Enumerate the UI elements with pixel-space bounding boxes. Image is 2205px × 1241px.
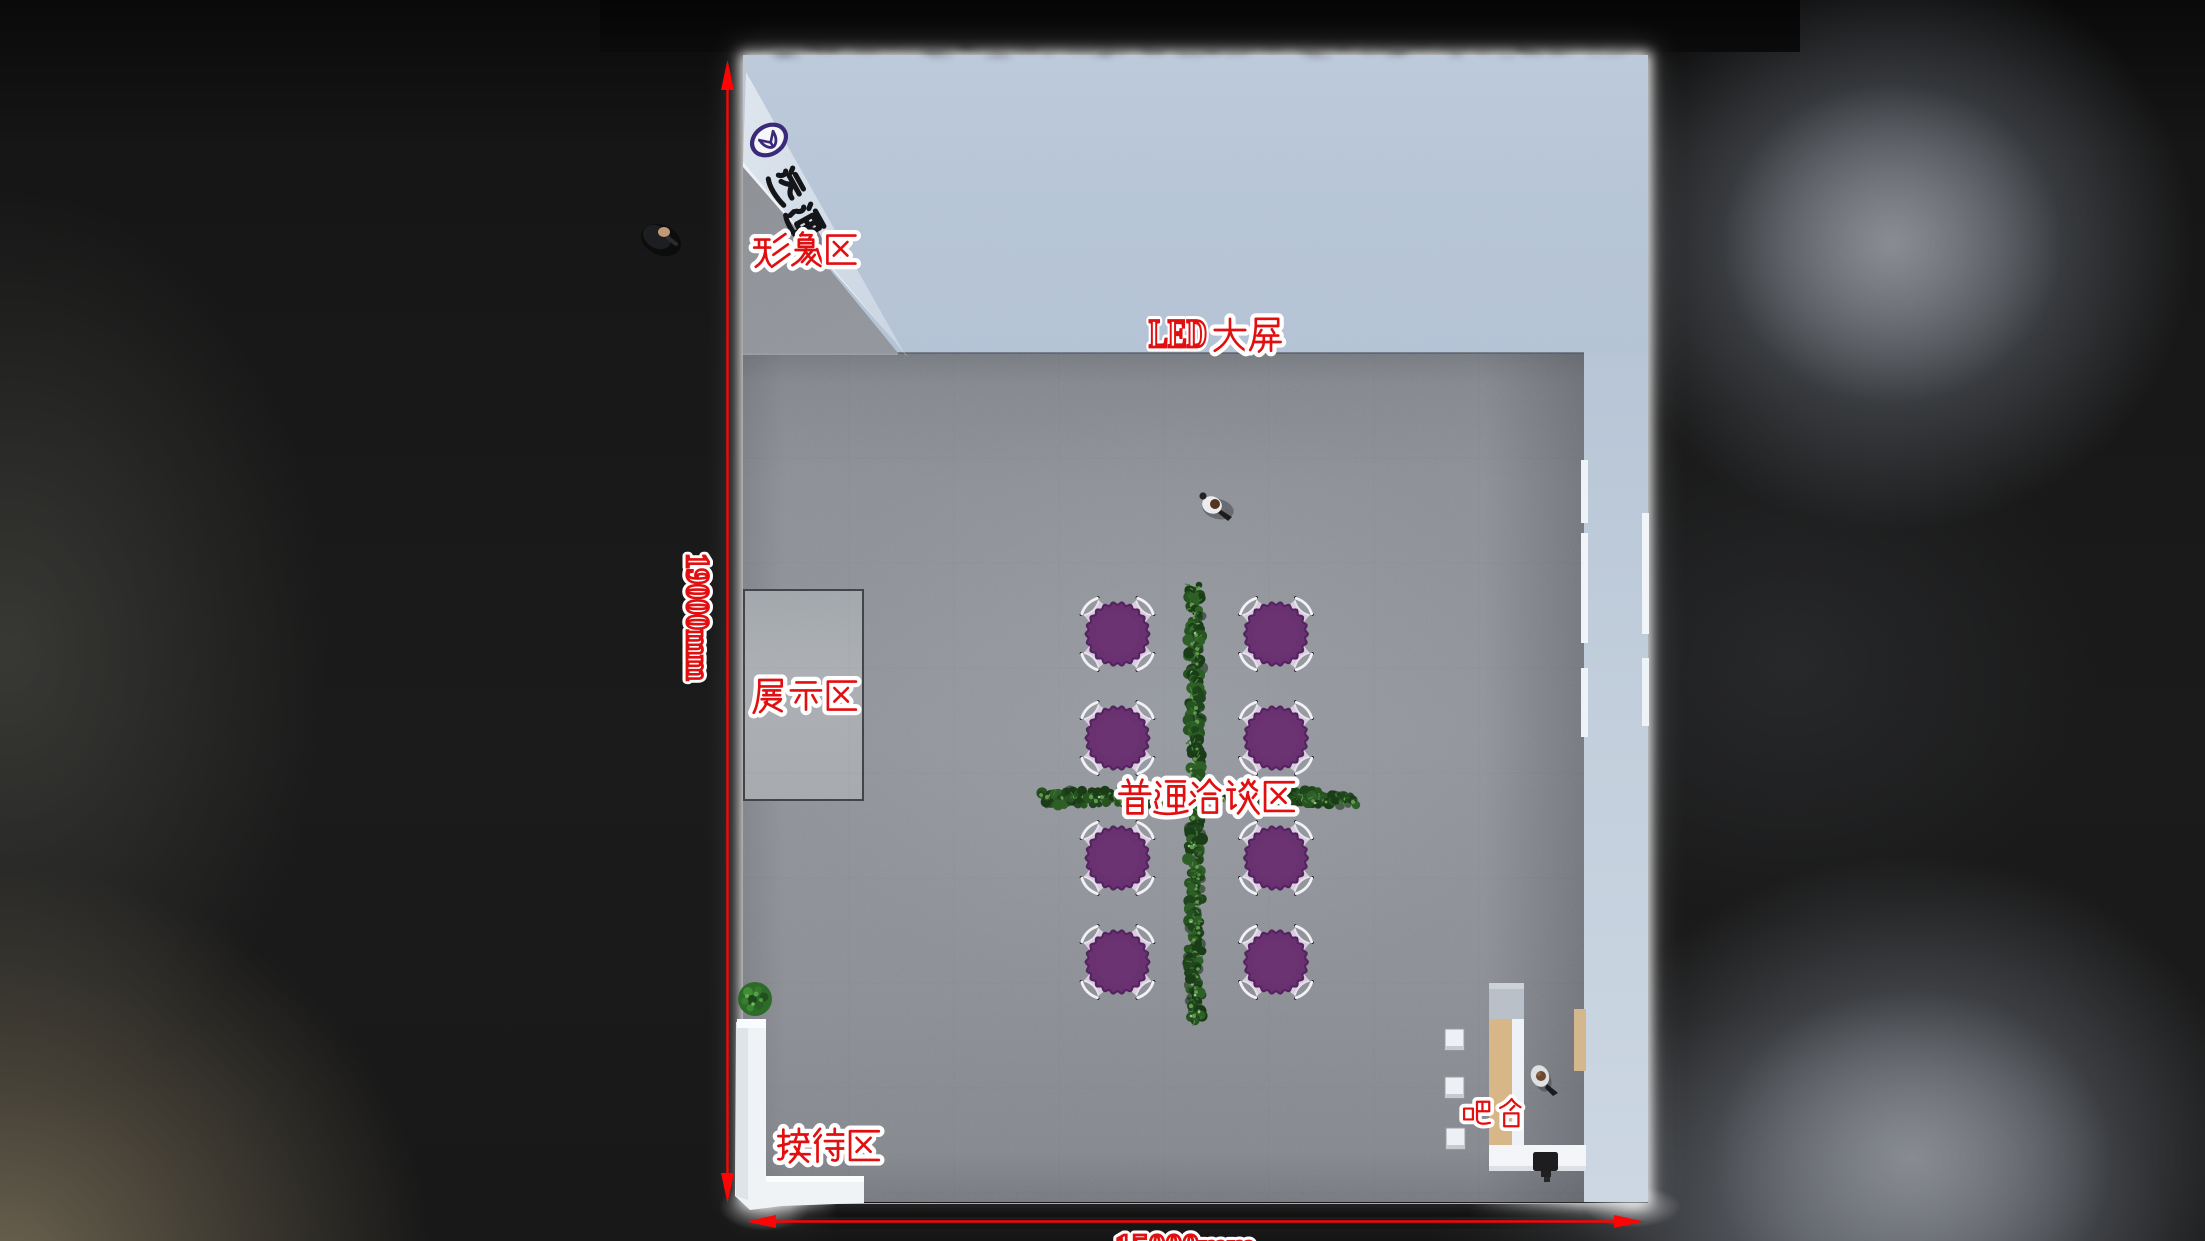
svg-text:15000mm: 15000mm: [1115, 1228, 1255, 1241]
svg-text:19000mm: 19000mm: [679, 554, 715, 681]
svg-text:LED: LED: [1149, 311, 1207, 356]
